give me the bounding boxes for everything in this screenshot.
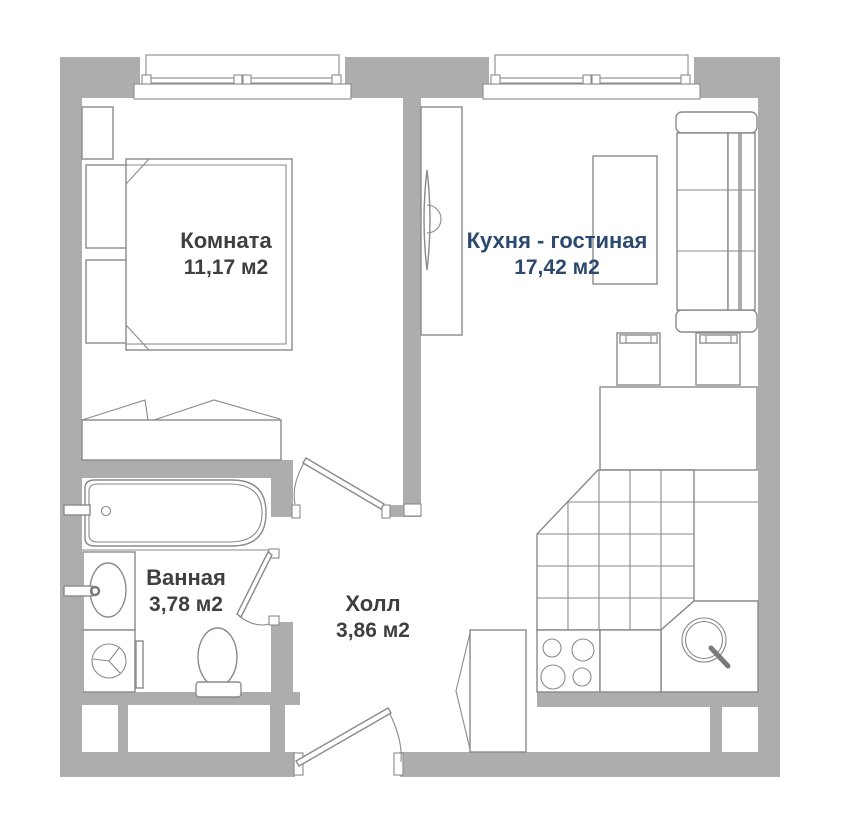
- tv-stand: [421, 107, 462, 335]
- fridge: [456, 630, 526, 752]
- wardrobe: [82, 400, 281, 460]
- wall-niche: [537, 707, 710, 752]
- floor-plan-drawing: [0, 0, 845, 813]
- wall-niche: [722, 707, 758, 752]
- washing-machine: [83, 630, 143, 692]
- room-name: Ванная: [146, 564, 226, 591]
- room-label-bedroom: Комната 11,17 м2: [180, 227, 271, 281]
- bedroom-window: [134, 55, 351, 99]
- floor-plan: Комната 11,17 м2 Кухня - гостиная 17,42 …: [0, 0, 845, 813]
- room-label-bathroom: Ванная 3,78 м2: [146, 564, 226, 618]
- room-area: 3,86 м2: [336, 617, 410, 644]
- wall-niche: [82, 705, 118, 752]
- bathroom-door: [237, 549, 279, 625]
- entrance-door: [294, 708, 403, 775]
- stool: [617, 333, 660, 385]
- stool: [696, 333, 740, 385]
- room-name: Комната: [180, 227, 271, 254]
- room-area: 17,42 м2: [467, 254, 648, 281]
- sofa: [676, 112, 757, 332]
- nightstand: [86, 165, 130, 248]
- tv: [424, 170, 430, 270]
- nightstand: [86, 260, 130, 343]
- room-area: 11,17 м2: [180, 254, 271, 281]
- bedroom-door: [292, 458, 390, 518]
- room-label-kitchen-living: Кухня - гостиная 17,42 м2: [467, 227, 648, 281]
- duct-niche: [82, 107, 113, 159]
- wall-niche: [128, 705, 270, 752]
- stove-counter: [537, 630, 600, 692]
- room-name: Кухня - гостиная: [467, 227, 648, 254]
- corner-worktop-grid: [537, 470, 694, 630]
- bar-counter: [600, 387, 757, 470]
- room-area: 3,78 м2: [146, 591, 226, 618]
- bathtub: [64, 480, 270, 550]
- room-label-hall: Холл 3,86 м2: [336, 590, 410, 644]
- kitchen-window: [483, 55, 700, 99]
- room-name: Холл: [336, 590, 410, 617]
- toilet: [196, 628, 241, 697]
- wall-end-cap: [404, 504, 421, 516]
